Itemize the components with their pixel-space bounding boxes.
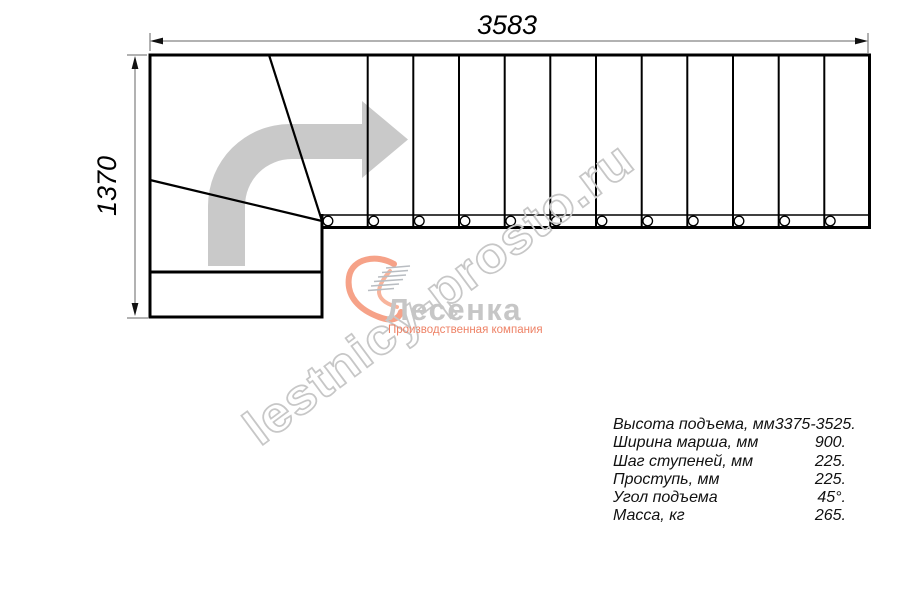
spec-value: 265. — [815, 507, 846, 525]
spec-table: Высота подъема, мм 3375-3525. Ширина мар… — [613, 416, 846, 526]
spec-value: 225. — [815, 471, 846, 489]
dim-arrow-left-icon — [150, 38, 163, 45]
spec-label: Проступь, мм — [613, 471, 719, 489]
dimension-width-label: 3583 — [477, 10, 537, 40]
spec-label: Угол подъема — [613, 489, 718, 507]
spec-row-step: Шаг ступеней, мм 225. — [613, 453, 846, 471]
spec-row-angle: Угол подъема 45°. — [613, 489, 846, 507]
spec-value: 45°. — [817, 489, 846, 507]
direction-arrow-icon — [208, 101, 408, 266]
spec-value: 225. — [815, 453, 846, 471]
dimension-height: 1370 — [92, 55, 148, 318]
dimension-width: 3583 — [150, 10, 868, 53]
spec-label: Шаг ступеней, мм — [613, 453, 753, 471]
spec-row-height: Высота подъема, мм 3375-3525. — [613, 416, 846, 434]
spec-row-mass: Масса, кг 265. — [613, 507, 846, 525]
logo-tagline: Производственная компания — [388, 324, 543, 336]
dim-arrow-down-icon — [132, 303, 139, 316]
staircase-drawing-canvas: 3583 1370 lestnicy-pros — [0, 0, 900, 600]
dim-arrow-right-icon — [855, 38, 868, 45]
spec-value: 3375-3525. — [775, 416, 856, 434]
dimension-height-label: 1370 — [92, 156, 122, 216]
spec-row-width: Ширина марша, мм 900. — [613, 434, 846, 452]
logo-wordmark: Лесенка — [387, 292, 522, 328]
spec-row-tread: Проступь, мм 225. — [613, 471, 846, 489]
spec-label: Ширина марша, мм — [613, 434, 758, 452]
dim-arrow-up-icon — [132, 56, 139, 69]
staircase-outline — [149, 54, 872, 319]
spec-value: 900. — [815, 434, 846, 452]
spec-label: Высота подъема, мм — [613, 416, 775, 434]
spec-label: Масса, кг — [613, 507, 685, 525]
